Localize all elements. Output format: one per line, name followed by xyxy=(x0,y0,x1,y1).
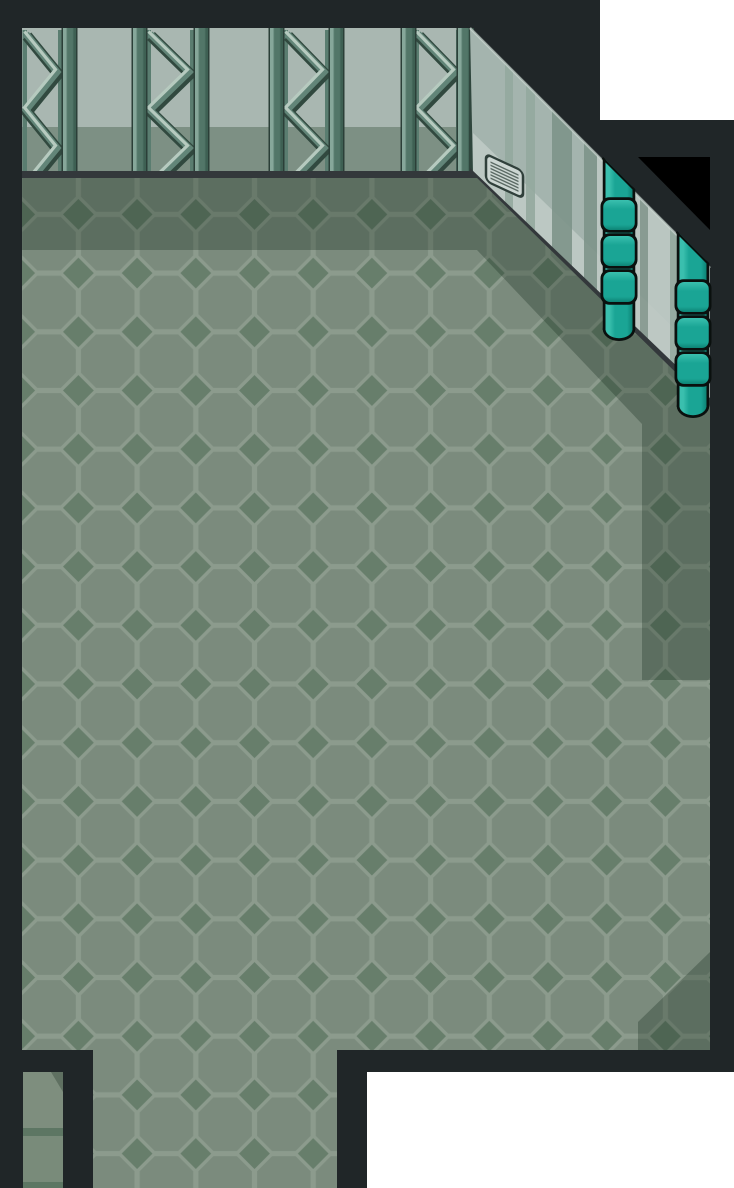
girder-wall xyxy=(22,28,474,188)
outside-area-bottom xyxy=(367,1072,734,1188)
pipe-ring xyxy=(603,200,635,230)
pipe-ring xyxy=(677,318,709,348)
game-viewport[interactable] xyxy=(0,0,734,1188)
west-corridor xyxy=(23,1072,63,1188)
pipe-ring xyxy=(603,272,635,302)
wall-pillar xyxy=(195,28,208,173)
wall-pillar xyxy=(402,28,415,173)
corridor-tile-seam xyxy=(23,1182,63,1188)
wall-pillar xyxy=(133,28,146,173)
wall-pillar xyxy=(270,28,283,173)
pipe-ring xyxy=(677,354,709,384)
warehouse-map xyxy=(0,0,734,1188)
wall-floor-junction xyxy=(22,171,473,178)
wall-pillar xyxy=(330,28,343,173)
wall-pillar xyxy=(63,28,76,173)
outside-area-top-right xyxy=(600,0,734,120)
pipe-ring xyxy=(603,236,635,266)
pipe-ring xyxy=(677,282,709,312)
corridor-tile-seam xyxy=(23,1128,63,1136)
corridor-floor-lower xyxy=(23,1136,63,1182)
